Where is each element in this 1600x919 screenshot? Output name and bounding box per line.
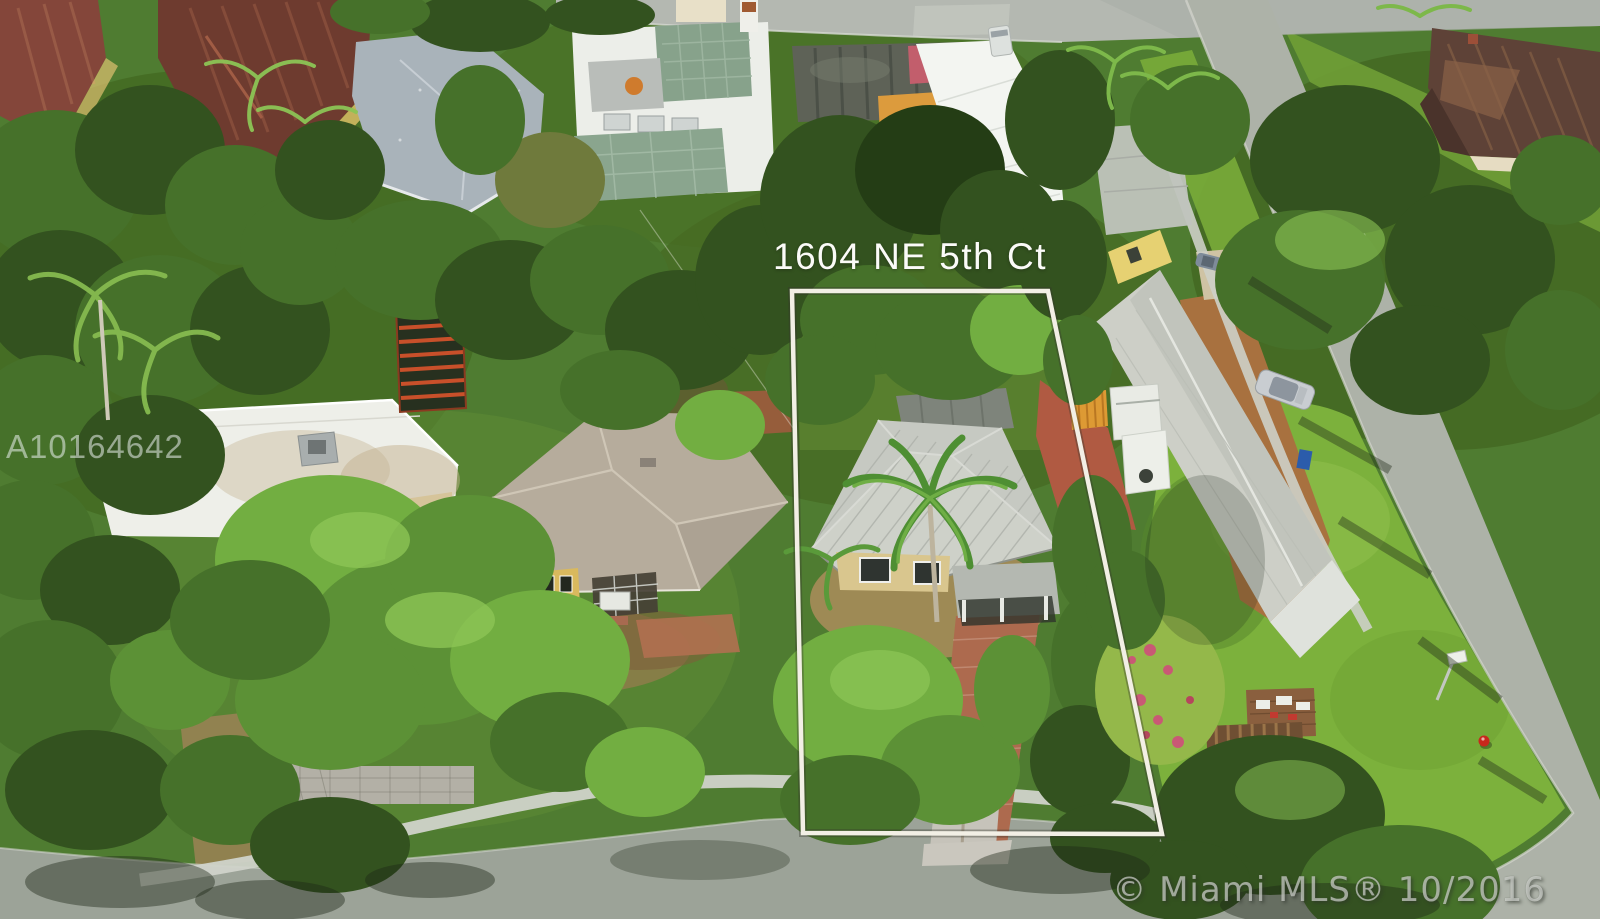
aerial-scene — [0, 0, 1600, 919]
aerial-photo: 1604 NE 5th Ct A10164642 © Miami MLS® 10… — [0, 0, 1600, 919]
mls-watermark-id: A10164642 — [6, 428, 184, 466]
parked-van — [988, 25, 1013, 57]
rooftop-umbrella — [625, 77, 643, 95]
mls-copyright-stamp: © Miami MLS® 10/2016 — [1112, 870, 1546, 910]
property-address-label: 1604 NE 5th Ct — [745, 236, 1075, 278]
